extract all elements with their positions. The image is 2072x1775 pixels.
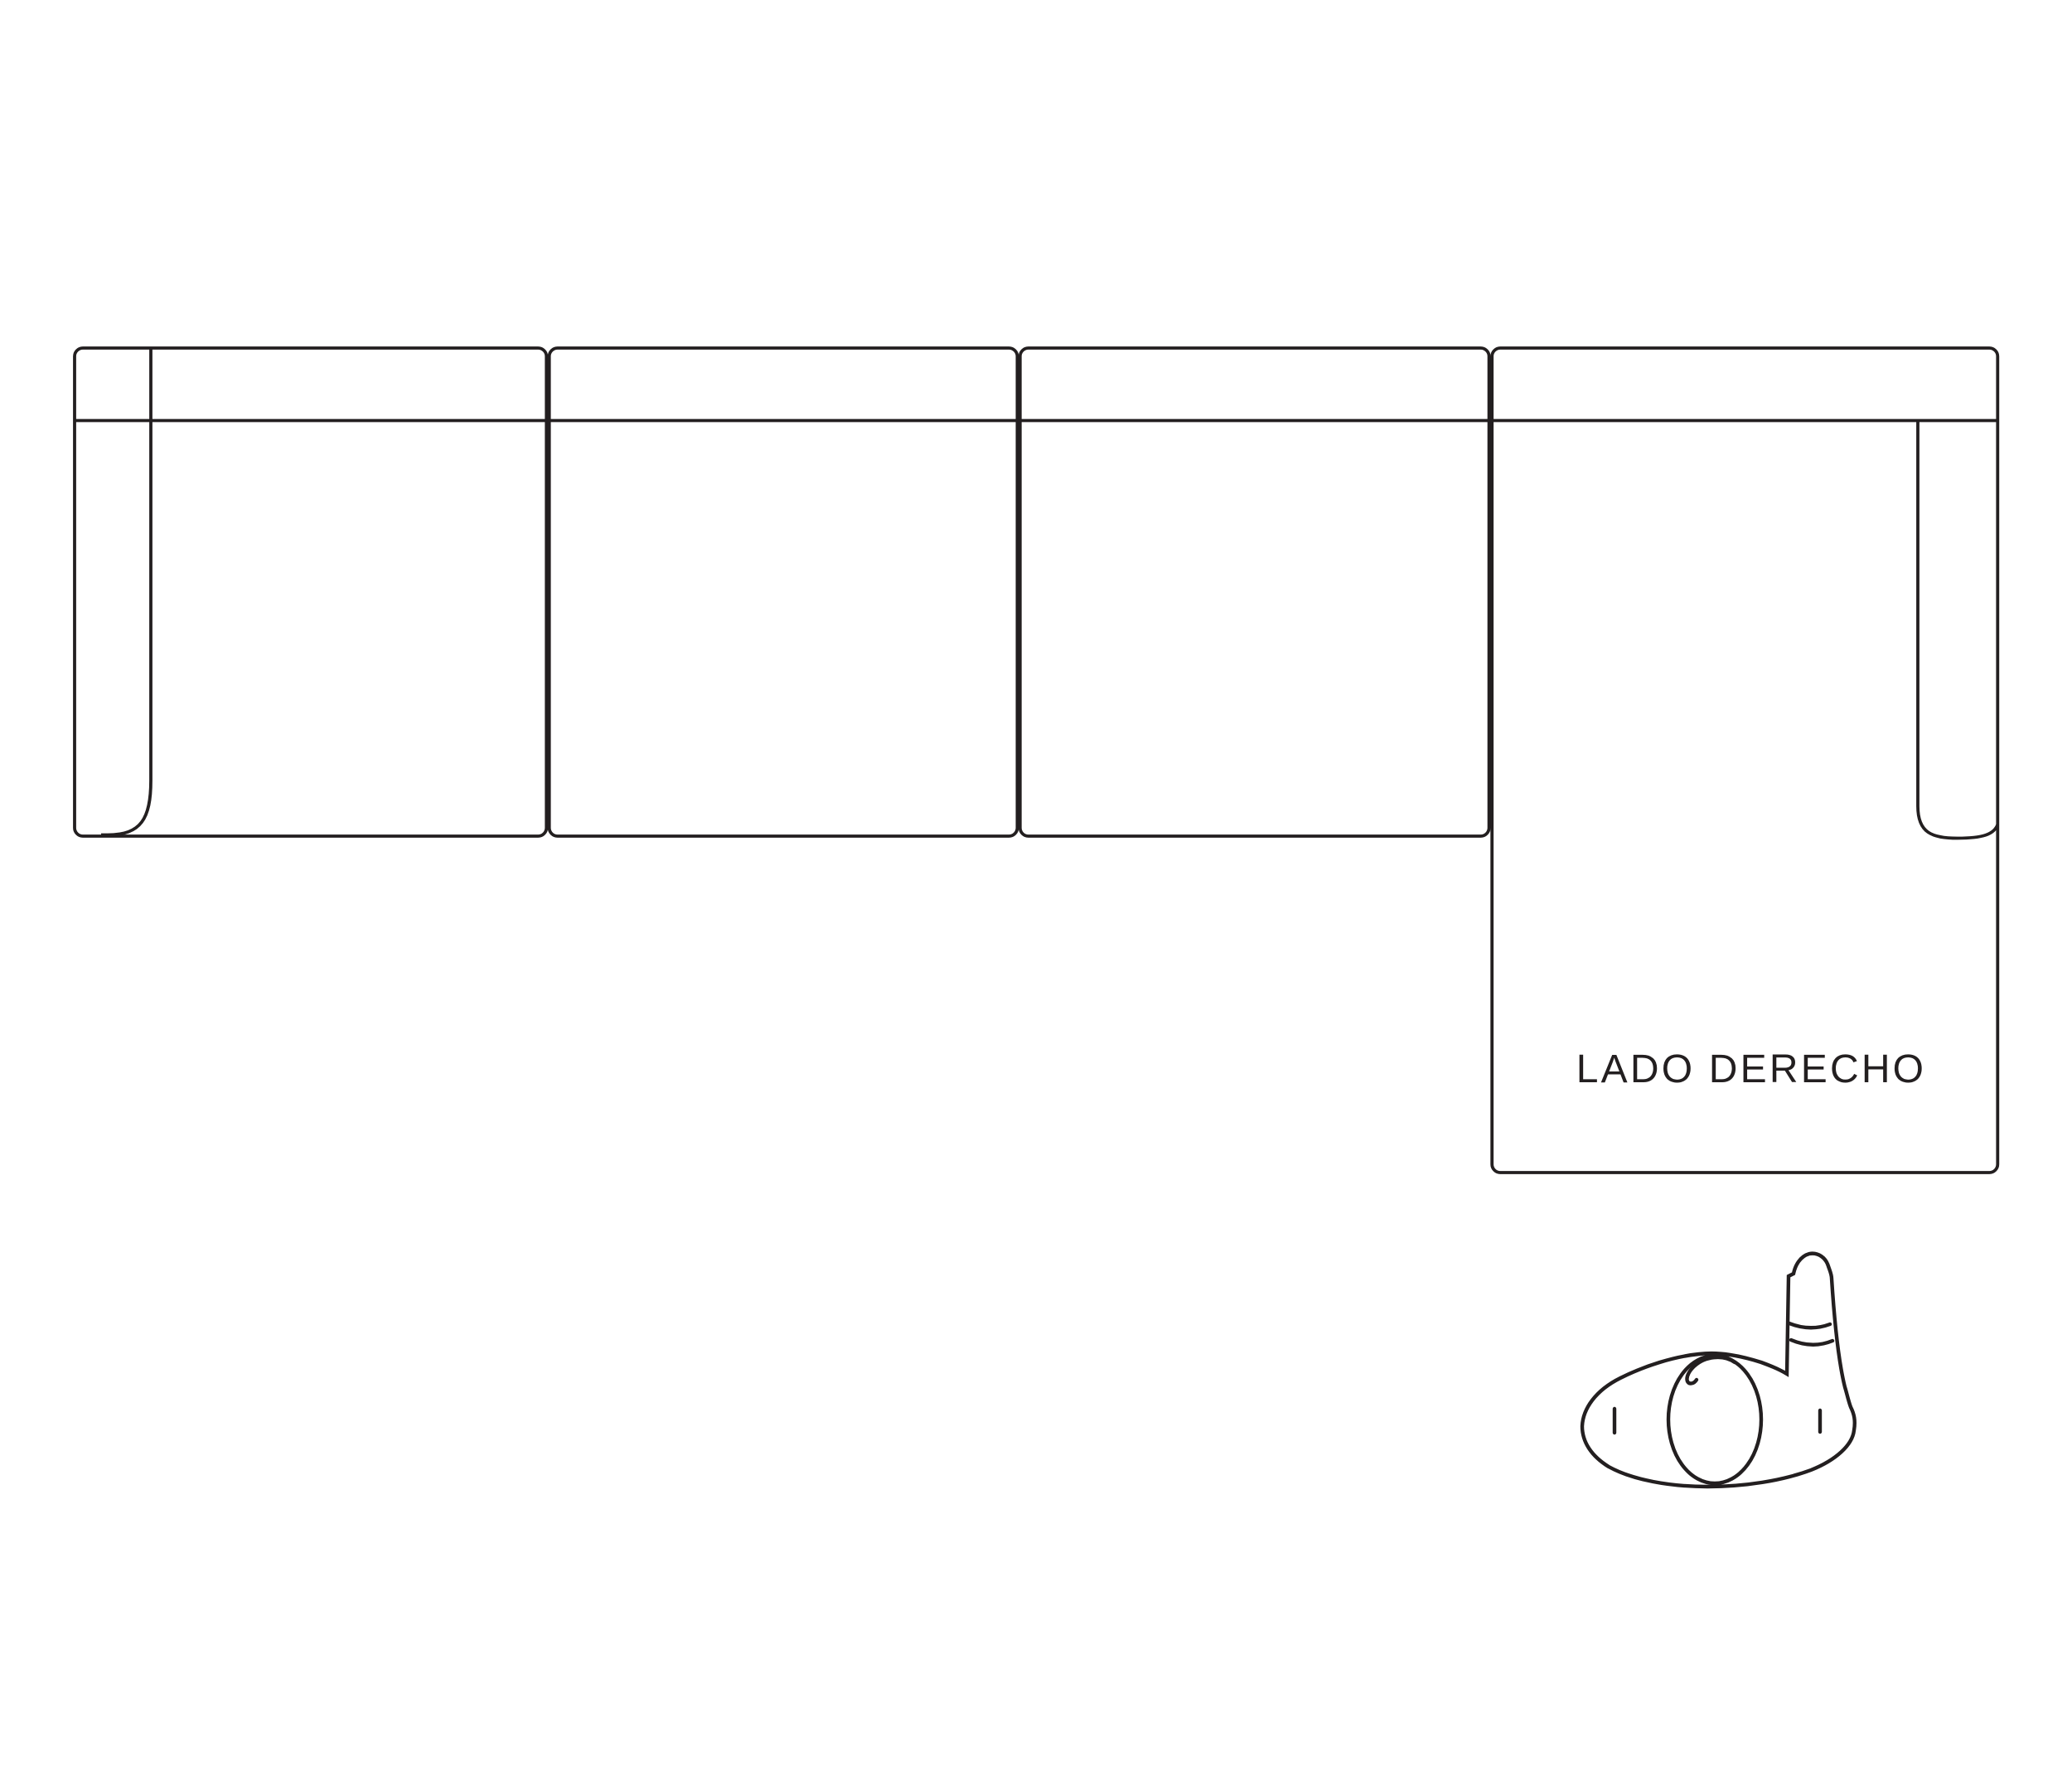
svg-text:LADO DERECHO: LADO DERECHO: [1576, 1047, 1926, 1091]
